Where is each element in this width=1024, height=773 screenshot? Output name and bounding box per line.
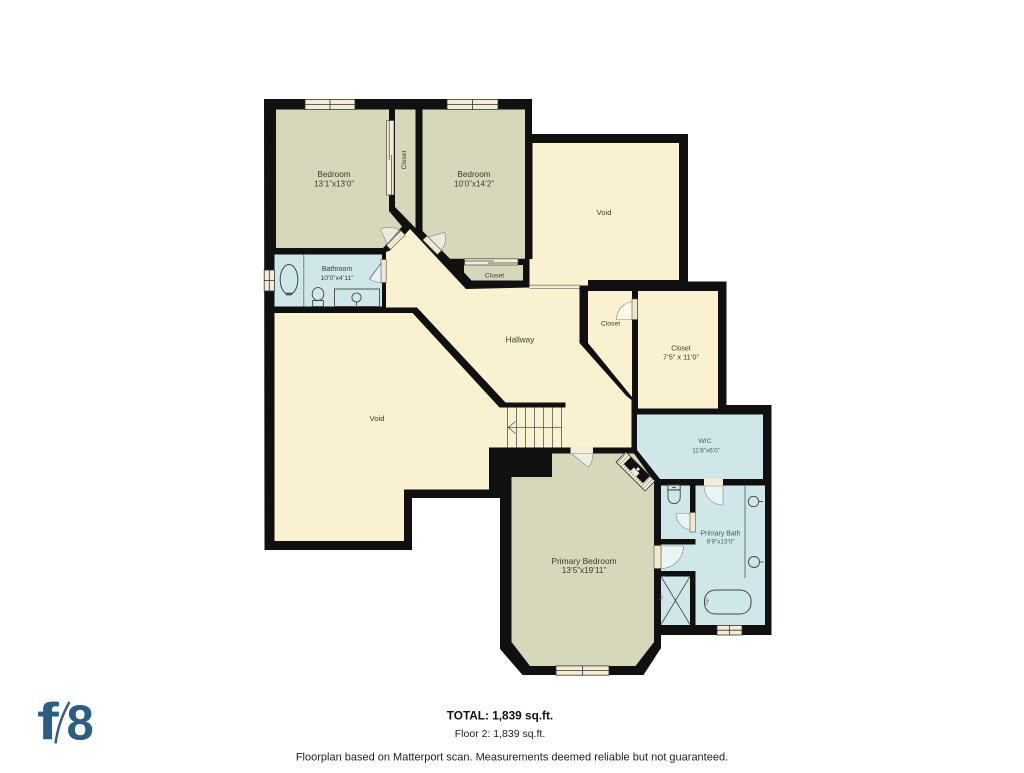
svg-text:10’0”x4’11”: 10’0”x4’11”	[320, 275, 354, 282]
svg-text:60x: 60x	[286, 292, 292, 297]
svg-text:Primary Bath: Primary Bath	[701, 530, 741, 537]
svg-text:13’1”x13’0”: 13’1”x13’0”	[314, 180, 354, 189]
svg-text:11’8”x6’0”: 11’8”x6’0”	[692, 447, 720, 454]
svg-text:Floorplan based on Matterport: Floorplan based on Matterport scan. Meas…	[296, 752, 728, 764]
svg-text:Void: Void	[370, 414, 385, 423]
svg-text:Closet: Closet	[601, 321, 620, 328]
svg-text:Bedroom: Bedroom	[317, 170, 350, 179]
svg-text:Bathroom: Bathroom	[322, 266, 353, 273]
svg-text:9’9”x13’0”: 9’9”x13’0”	[706, 539, 734, 546]
svg-text:Bedroom: Bedroom	[457, 170, 490, 179]
svg-text:13’5”x19’11”: 13’5”x19’11”	[562, 566, 607, 575]
svg-text:7’5” x 11’0”: 7’5” x 11’0”	[663, 352, 700, 361]
svg-text:TOTAL: 1,839 sq.ft.: TOTAL: 1,839 sq.ft.	[447, 709, 553, 723]
svg-text:Primary Bedroom: Primary Bedroom	[551, 556, 616, 566]
svg-text:WIC: WIC	[698, 438, 711, 445]
svg-text:8: 8	[67, 697, 94, 751]
svg-text:Hallway: Hallway	[506, 336, 536, 345]
svg-text:Floor 2: 1,839 sq.ft.: Floor 2: 1,839 sq.ft.	[455, 728, 545, 740]
svg-text:Closet: Closet	[485, 272, 504, 279]
svg-text:Closet: Closet	[401, 150, 408, 169]
svg-text:Void: Void	[597, 208, 612, 217]
svg-text:10’0”x14’2”: 10’0”x14’2”	[454, 180, 494, 189]
